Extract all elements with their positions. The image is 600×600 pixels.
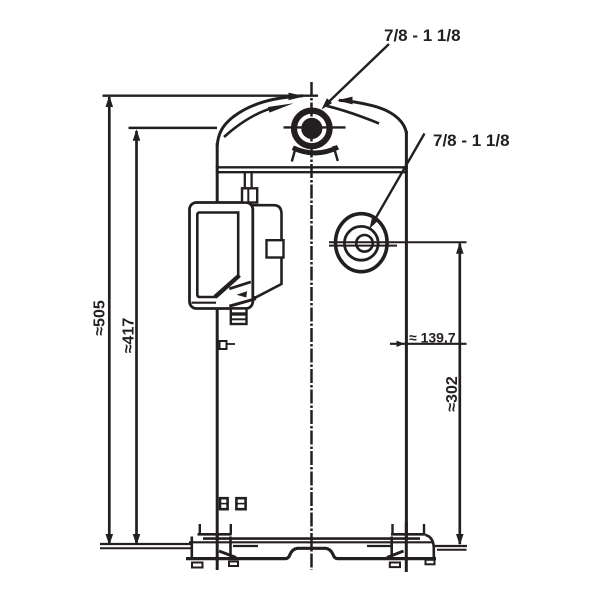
svg-text:≈ 139,7: ≈ 139,7 xyxy=(409,330,456,346)
svg-text:≈417: ≈417 xyxy=(121,318,138,354)
svg-text:≈302: ≈302 xyxy=(444,376,461,412)
svg-text:7/8 - 1 1/8: 7/8 - 1 1/8 xyxy=(384,26,461,45)
svg-text:≈505: ≈505 xyxy=(92,300,109,336)
svg-text:7/8 - 1 1/8: 7/8 - 1 1/8 xyxy=(433,131,510,150)
